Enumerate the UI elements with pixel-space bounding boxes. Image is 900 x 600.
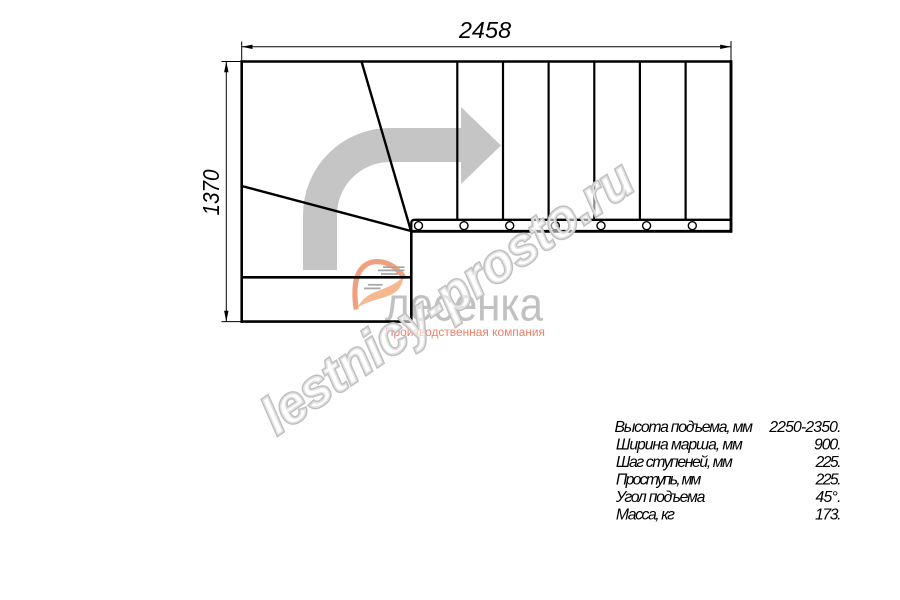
svg-text:225.: 225. xyxy=(815,472,842,489)
svg-text:2250-2350.: 2250-2350. xyxy=(768,419,841,436)
svg-text:45°.: 45°. xyxy=(816,489,842,506)
svg-text:Ширина марша, мм: Ширина марша, мм xyxy=(616,437,743,454)
svg-text:225.: 225. xyxy=(815,454,842,471)
svg-text:1370: 1370 xyxy=(198,170,224,216)
svg-text:Масса, кг: Масса, кг xyxy=(616,506,675,523)
svg-text:Высота подъема, мм: Высота подъема, мм xyxy=(615,419,754,436)
svg-text:900.: 900. xyxy=(814,437,842,454)
svg-text:173.: 173. xyxy=(815,506,842,523)
svg-text:Проступь, мм: Проступь, мм xyxy=(616,472,702,489)
svg-text:Угол подъема: Угол подъема xyxy=(615,489,706,506)
svg-text:Шаг ступеней, мм: Шаг ступеней, мм xyxy=(616,454,733,471)
svg-text:2458: 2458 xyxy=(458,17,511,43)
